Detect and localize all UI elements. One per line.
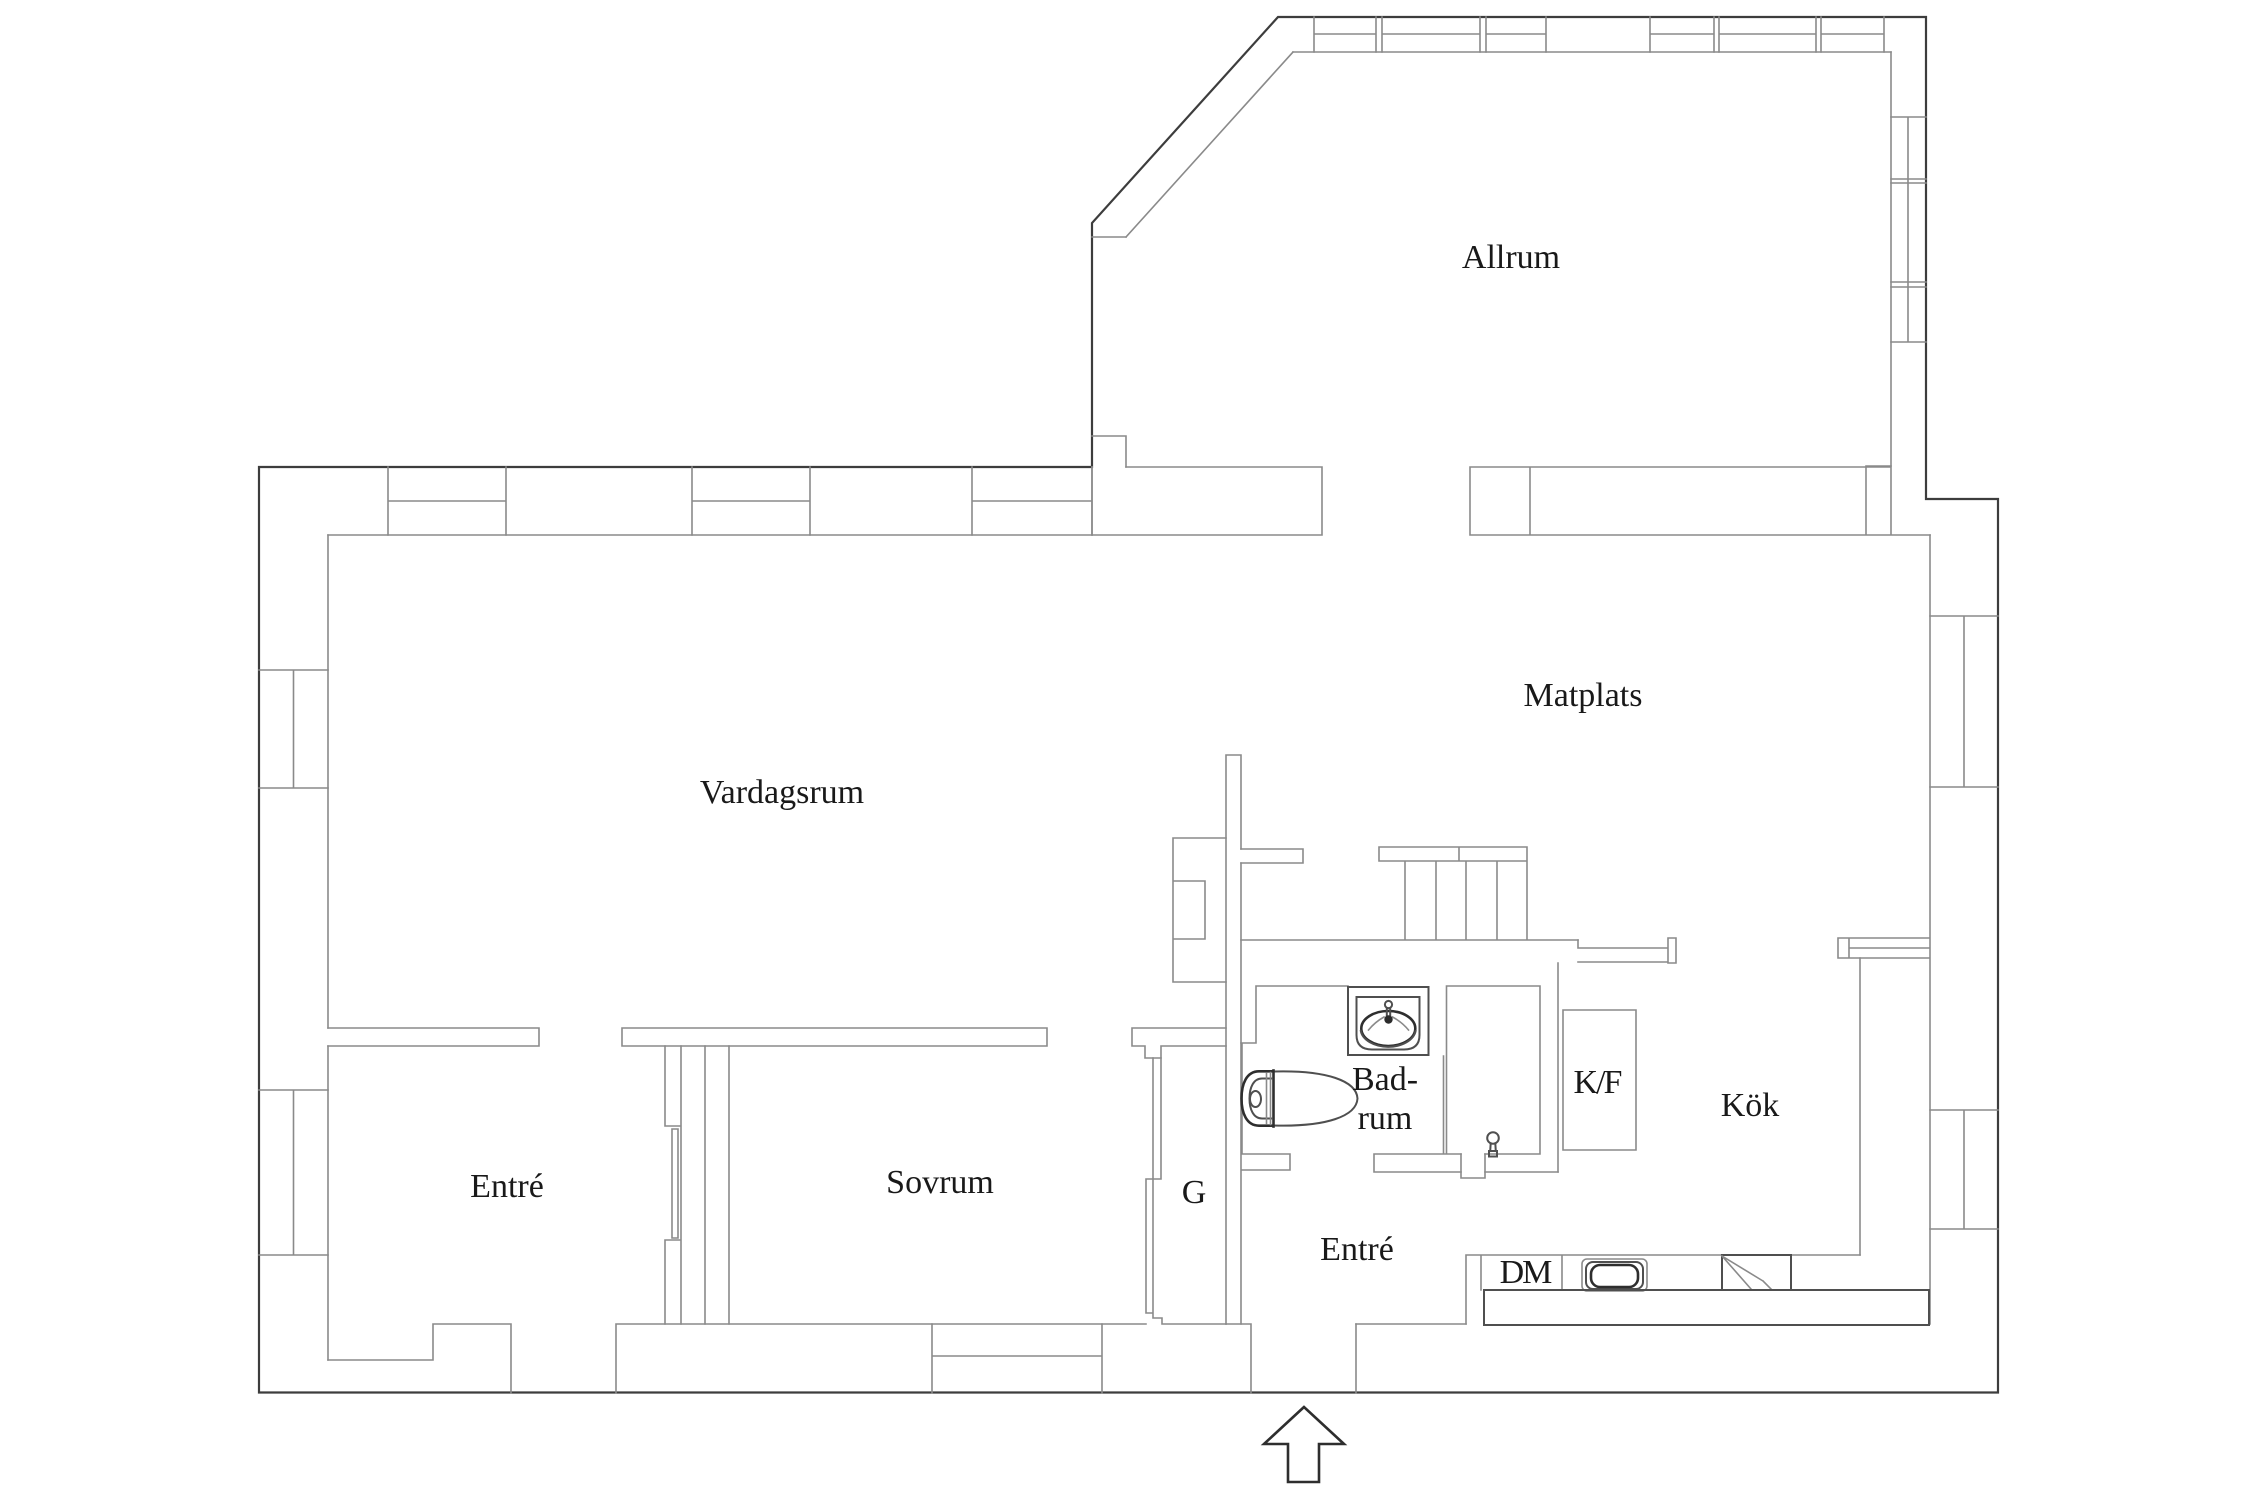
svg-text:Sovrum: Sovrum xyxy=(886,1164,994,1201)
svg-text:Vardagsrum: Vardagsrum xyxy=(700,774,864,811)
svg-text:Bad-: Bad- xyxy=(1352,1061,1418,1098)
svg-text:rum: rum xyxy=(1358,1100,1413,1137)
svg-text:Matplats: Matplats xyxy=(1524,677,1643,714)
svg-text:Entré: Entré xyxy=(1320,1231,1394,1268)
svg-text:G: G xyxy=(1182,1174,1207,1211)
svg-text:K/F: K/F xyxy=(1574,1064,1622,1101)
svg-text:Entré: Entré xyxy=(470,1168,544,1205)
svg-text:Kök: Kök xyxy=(1721,1087,1780,1124)
svg-text:DM: DM xyxy=(1500,1254,1553,1291)
svg-text:Allrum: Allrum xyxy=(1462,239,1560,276)
